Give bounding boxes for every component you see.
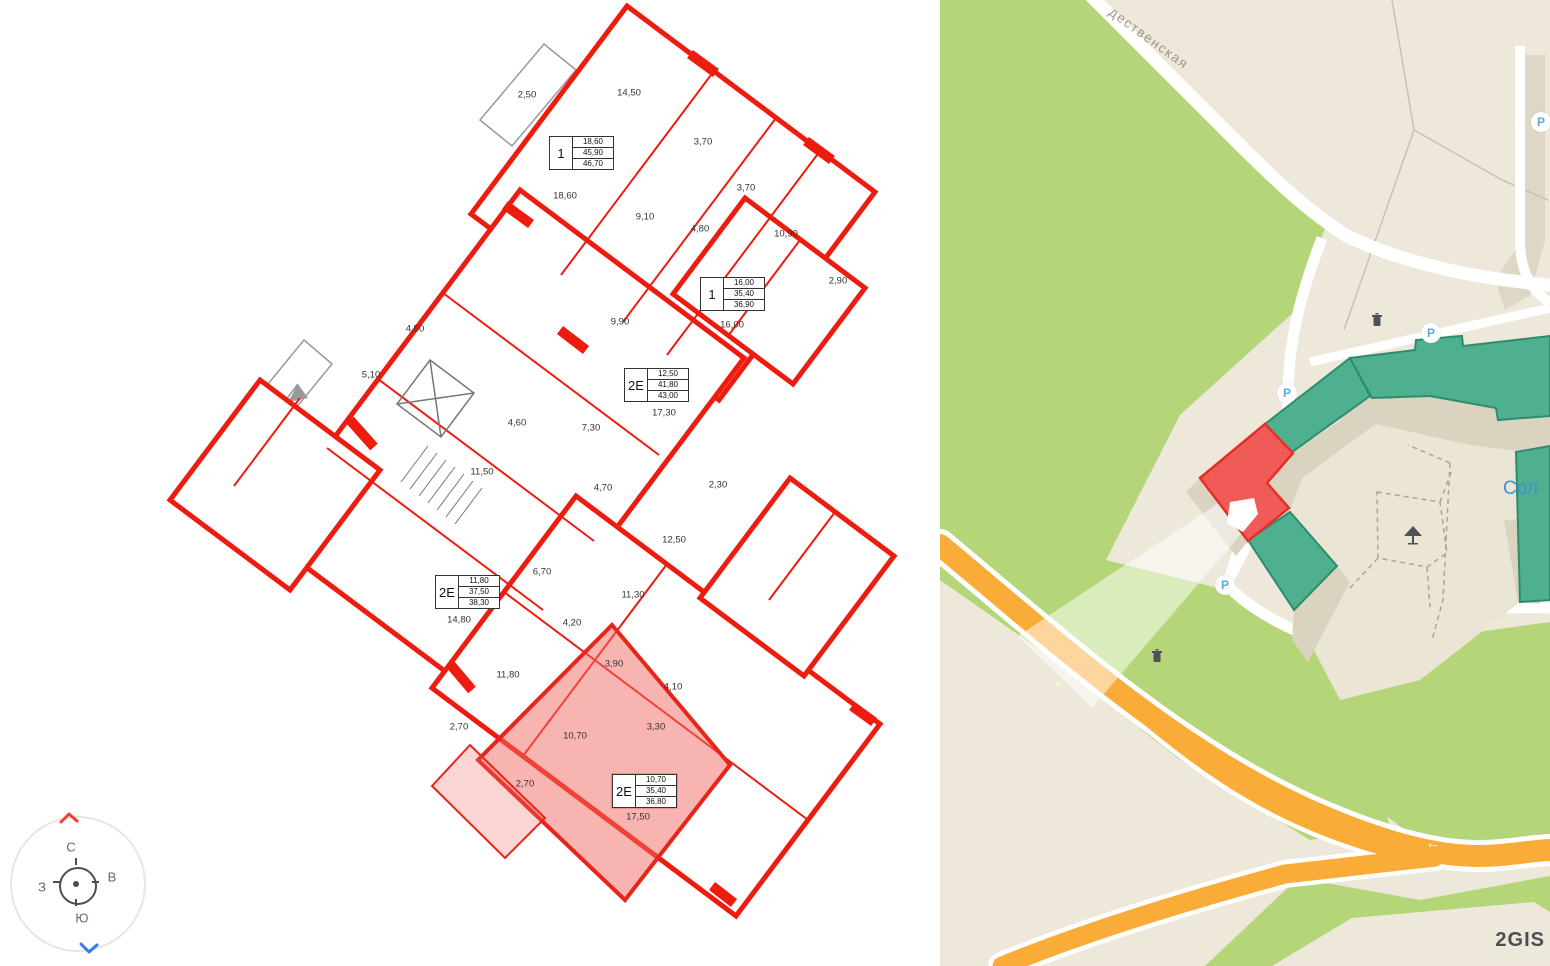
room-area-label: 4,20 (563, 618, 582, 629)
room-area-label: 4,50 (406, 324, 425, 335)
unit-area-total: 36,90 (724, 300, 764, 310)
screenshot-stage: 2,5014,503,7018,609,104,803,7010,902,901… (0, 0, 1550, 966)
room-area-label: 12,50 (662, 535, 686, 546)
room-area-label: 11,50 (470, 467, 493, 478)
unit-spec-box[interactable]: 1 16,00 35,40 36,90 (700, 277, 765, 311)
unit-areas: 11,80 37,50 38,30 (459, 576, 499, 608)
room-area-label: 2,30 (709, 480, 728, 491)
parking-letter: Р (1283, 387, 1291, 399)
room-area-label: 18,60 (553, 191, 577, 202)
parking-letter: Р (1537, 116, 1545, 128)
unit-areas: 16,00 35,40 36,90 (724, 278, 764, 310)
room-area-label: 5,10 (362, 370, 381, 381)
room-area-label: 3,90 (605, 659, 624, 670)
unit-spec-box[interactable]: 1 18,60 45,90 46,70 (549, 136, 614, 170)
unit-type-label: 1 (701, 278, 724, 310)
unit-spec-box[interactable]: 2Е 11,80 37,50 38,30 (435, 575, 500, 609)
road-arrow-icon: ← (1425, 834, 1442, 852)
room-area-label: 16,00 (720, 320, 744, 331)
parking-letter: Р (1427, 327, 1435, 339)
unit-type-label: 1 (550, 137, 573, 169)
room-area-label: 10,70 (563, 731, 587, 742)
unit-area-living: 37,50 (459, 587, 499, 598)
unit-spec-box[interactable]: 2Е 12,50 41,80 43,00 (624, 368, 689, 402)
north-arrow-icon[interactable] (61, 814, 77, 822)
unit-areas: 10,70 35,40 36,80 (636, 775, 676, 807)
building-band-east[interactable] (1516, 446, 1550, 602)
south-arrow-icon[interactable] (81, 944, 97, 952)
room-area-label: 4,60 (508, 418, 527, 429)
room-area-label: 2,70 (450, 722, 469, 733)
unit-type-label: 2Е (436, 576, 459, 608)
floor-plan-panel: 2,5014,503,7018,609,104,803,7010,902,901… (0, 0, 940, 966)
room-area-label: 9,10 (636, 212, 655, 223)
place-name-label: Сол (1503, 478, 1538, 499)
unit-type-label: 2Е (625, 369, 648, 401)
unit-area-total: 38,30 (459, 598, 499, 608)
unit-area-room: 11,80 (459, 576, 499, 587)
parking-icon: Р (1531, 112, 1550, 132)
room-area-label: 17,30 (652, 408, 676, 419)
unit-area-total: 36,80 (636, 797, 676, 807)
room-area-label: 10,90 (774, 229, 798, 240)
unit-area-room: 18,60 (573, 137, 613, 148)
map-canvas[interactable]: ← ← дественская Сол 2GIS (940, 0, 1550, 966)
parking-letter: Р (1221, 579, 1229, 591)
unit-area-total: 43,00 (648, 391, 688, 401)
room-area-label: 2,90 (829, 276, 848, 287)
room-area-label: 2,50 (518, 90, 537, 101)
room-area-label: 4,10 (664, 682, 683, 693)
room-area-label: 17,50 (626, 812, 650, 823)
parking-icon: Р (1421, 323, 1441, 343)
room-area-label: 3,70 (694, 137, 713, 148)
compass-widget: С В Ю З (6, 810, 146, 958)
unit-area-living: 35,40 (636, 786, 676, 797)
unit-area-living: 45,90 (573, 148, 613, 159)
unit-spec-box[interactable]: 2Е 10,70 35,40 36,80 (612, 774, 677, 808)
room-area-label: 4,70 (594, 483, 613, 494)
unit-area-living: 41,80 (648, 380, 688, 391)
unit-area-room: 10,70 (636, 775, 676, 786)
room-area-label: 2,70 (516, 779, 535, 790)
parking-icon: Р (1277, 383, 1297, 403)
unit-area-living: 35,40 (724, 289, 764, 300)
room-area-label: 11,80 (496, 670, 519, 681)
room-area-label: 4,80 (691, 224, 710, 235)
room-area-label: 6,70 (533, 567, 552, 578)
room-area-label: 3,70 (737, 183, 756, 194)
room-area-label: 3,30 (647, 722, 666, 733)
map-panel[interactable]: ← ← дественская Сол 2GIS Р Р Р Р (940, 0, 1550, 966)
unit-area-total: 46,70 (573, 159, 613, 169)
map-provider-watermark[interactable]: 2GIS (1495, 929, 1545, 951)
unit-areas: 18,60 45,90 46,70 (573, 137, 613, 169)
unit-area-room: 16,00 (724, 278, 764, 289)
parking-icon: Р (1215, 575, 1235, 595)
room-area-label: 11,30 (621, 590, 644, 601)
unit-areas: 12,50 41,80 43,00 (648, 369, 688, 401)
unit-type-label: 2Е (613, 775, 636, 807)
unit-area-room: 12,50 (648, 369, 688, 380)
room-area-label: 7,30 (582, 423, 601, 434)
room-area-label: 9,90 (611, 317, 630, 328)
room-area-label: 14,50 (617, 88, 641, 99)
compass-arrows (6, 810, 146, 958)
room-area-label: 14,80 (447, 615, 471, 626)
